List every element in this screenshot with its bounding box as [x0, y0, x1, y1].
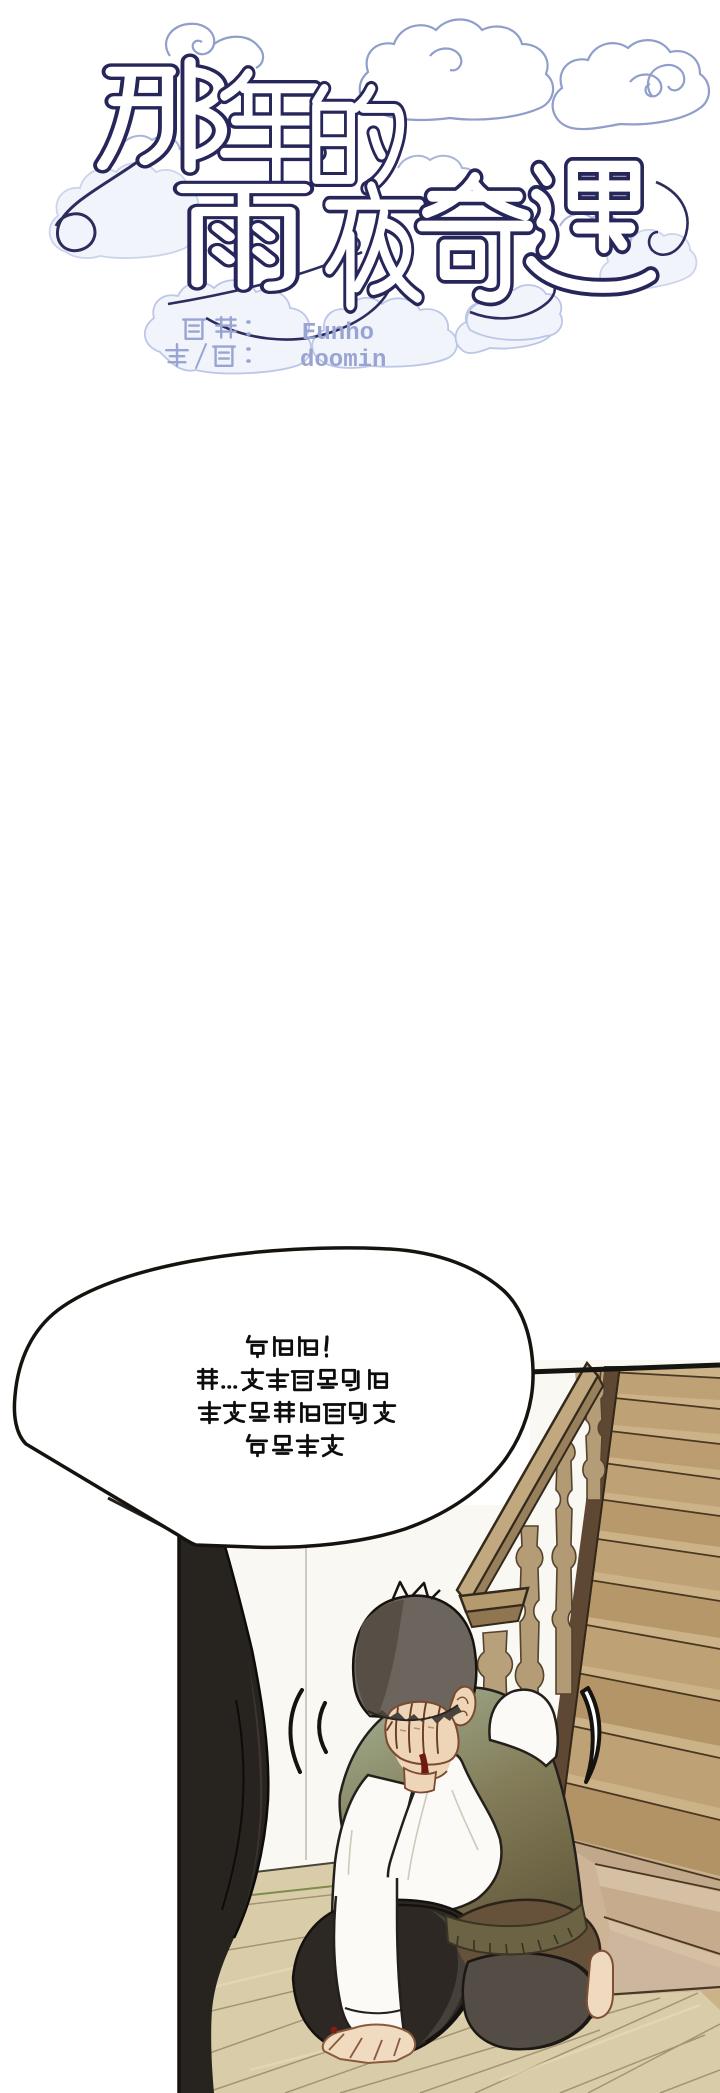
- svg-text:Eunho: Eunho: [302, 320, 374, 347]
- svg-text:doomin: doomin: [300, 347, 386, 374]
